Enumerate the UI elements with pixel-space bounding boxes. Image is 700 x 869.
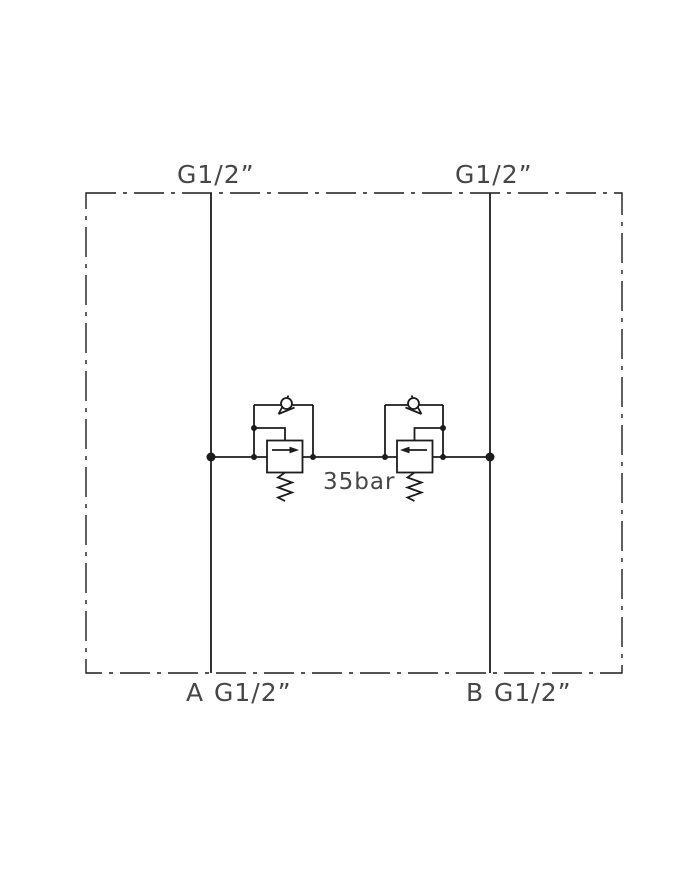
relief-valve-left — [251, 396, 316, 502]
manifold-boundary — [86, 193, 622, 673]
port-a-letter: A — [186, 678, 204, 707]
port-top-right-label: G1/2” — [455, 160, 533, 189]
junction-dot — [310, 454, 316, 460]
relief-valve-left-body — [267, 441, 303, 473]
hydraulic-schematic-svg: G1/2” G1/2” 35bar A G1/2” B G1/2” — [0, 0, 700, 869]
check-valve-left-icon — [279, 396, 295, 415]
junction-dot — [251, 454, 257, 460]
port-top-left-label: G1/2” — [177, 160, 255, 189]
port-b-junction-dot — [486, 453, 495, 462]
junction-dot — [440, 425, 446, 431]
relief-setting-label: 35bar — [323, 469, 395, 495]
port-b-letter: B — [466, 678, 484, 707]
schematic-drawing: G1/2” G1/2” 35bar A G1/2” B G1/2” — [0, 0, 700, 869]
junction-dot — [382, 454, 388, 460]
junction-dot — [440, 454, 446, 460]
port-b-thread-label: G1/2” — [494, 678, 572, 707]
spring-right-icon — [408, 473, 422, 502]
check-valve-right-icon — [406, 396, 422, 415]
port-a-thread-label: G1/2” — [214, 678, 292, 707]
port-a-junction-dot — [207, 453, 216, 462]
spring-left-icon — [278, 473, 292, 502]
relief-valve-right-body — [397, 441, 433, 473]
junction-dot — [251, 425, 257, 431]
